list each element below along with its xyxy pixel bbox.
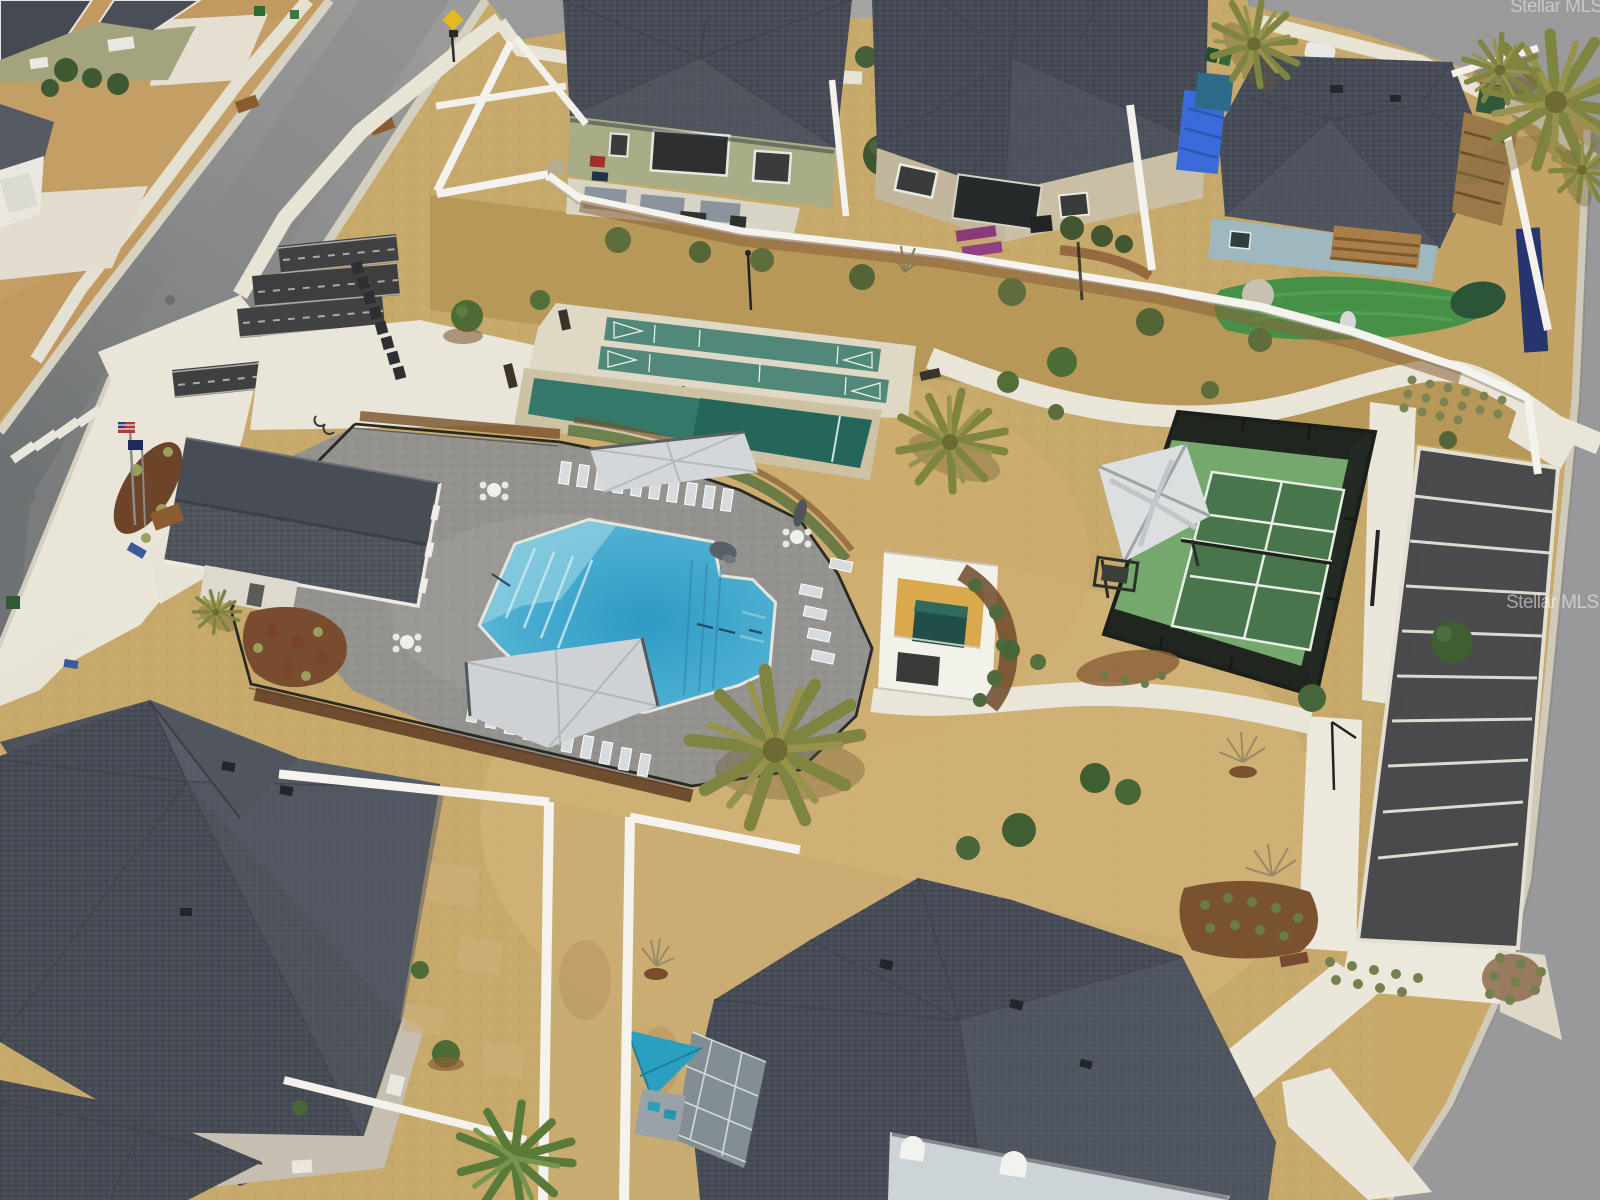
svg-text:Stellar MLS: Stellar MLS <box>1506 592 1599 613</box>
svg-text:Stellar MLS: Stellar MLS <box>1510 0 1600 17</box>
